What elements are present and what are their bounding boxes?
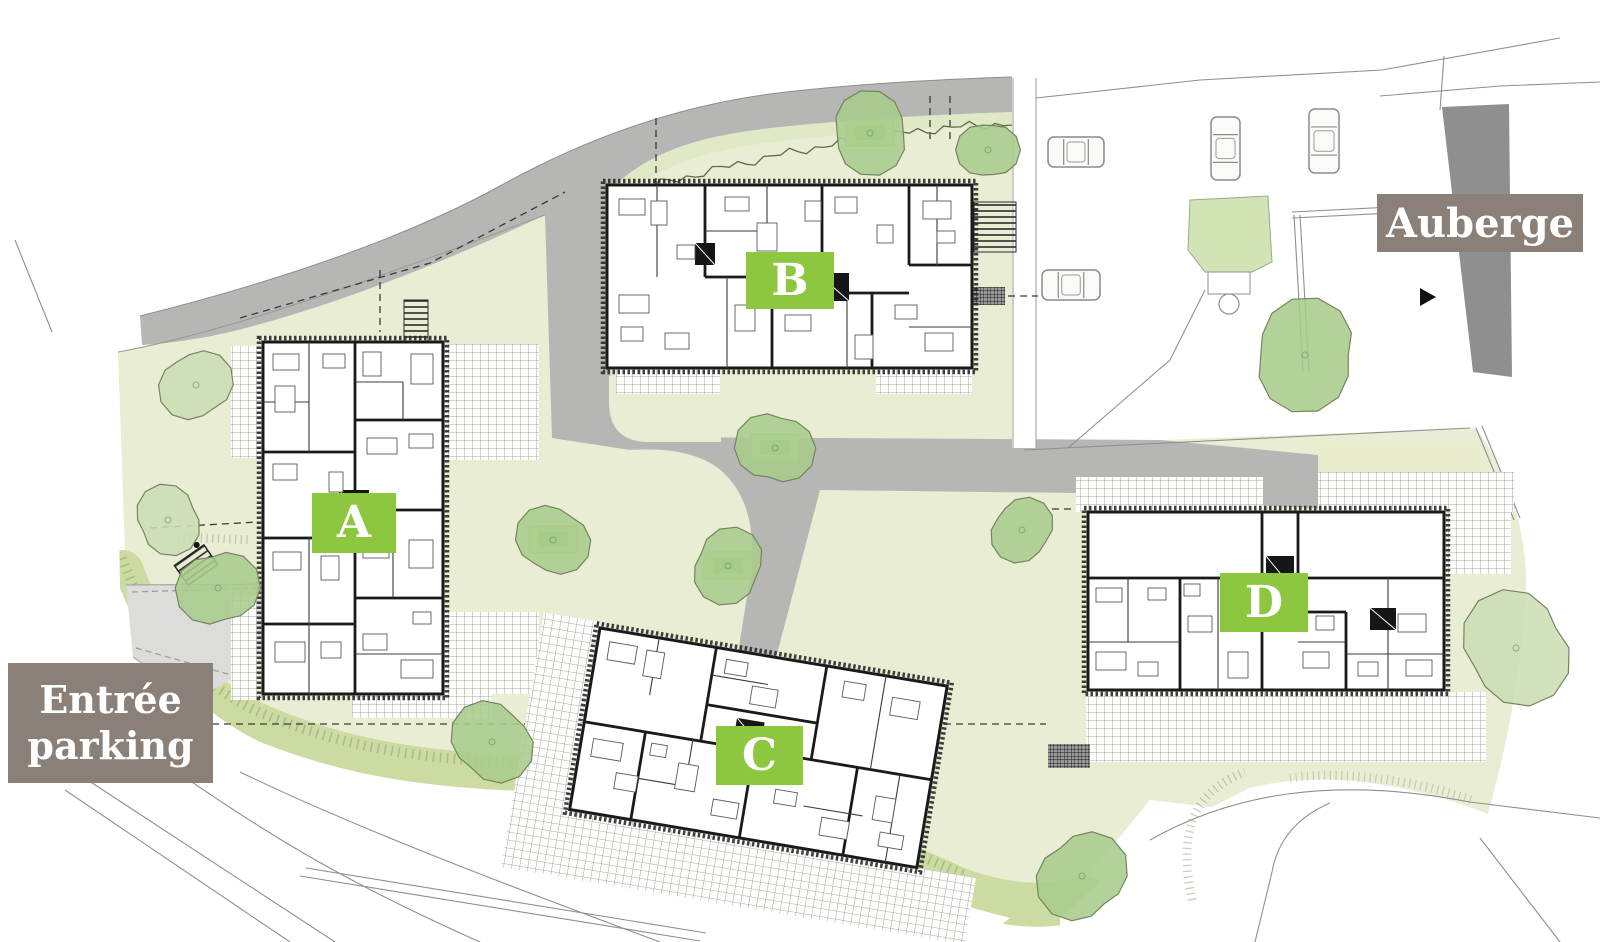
furniture <box>409 540 433 568</box>
entree-label-line1: Entrée <box>39 677 182 723</box>
car <box>1042 270 1100 300</box>
furniture <box>401 660 433 678</box>
tree-canopy <box>836 91 904 175</box>
furniture <box>1358 662 1378 676</box>
furniture <box>842 681 866 700</box>
furniture <box>619 199 645 215</box>
furniture <box>675 763 699 792</box>
furniture <box>363 352 381 376</box>
furniture <box>877 225 893 243</box>
furniture <box>651 201 667 225</box>
building-badge-b[interactable]: B <box>746 252 834 309</box>
site-plan: A B C D Auberge Entrée parking <box>0 0 1600 942</box>
car <box>1048 137 1104 167</box>
furniture <box>273 354 299 370</box>
furniture <box>665 333 689 349</box>
furniture <box>1188 616 1212 632</box>
furniture <box>1096 652 1126 670</box>
car <box>1211 117 1240 180</box>
furniture <box>321 556 339 580</box>
furniture <box>677 245 695 259</box>
tree <box>836 91 904 175</box>
d-garden-strip <box>1318 443 1482 472</box>
tree <box>956 125 1021 175</box>
furniture <box>750 686 779 708</box>
furniture <box>1406 660 1432 676</box>
furniture <box>275 386 295 412</box>
furniture <box>757 223 777 251</box>
furniture <box>895 305 917 319</box>
furniture <box>923 201 951 219</box>
furniture <box>411 354 433 384</box>
furniture <box>724 659 748 676</box>
furniture <box>1316 616 1334 630</box>
furniture <box>329 472 343 492</box>
furniture <box>1148 588 1166 600</box>
tree <box>1259 298 1351 412</box>
auberge-label: Auberge <box>1377 194 1583 252</box>
furniture <box>835 197 857 213</box>
car-body <box>1211 117 1240 180</box>
furniture <box>805 201 821 221</box>
auberge-label-text: Auberge <box>1386 200 1574 247</box>
furniture <box>621 327 643 341</box>
furniture <box>785 315 811 331</box>
furniture <box>413 612 431 624</box>
furniture <box>1398 614 1426 632</box>
furniture <box>1303 652 1329 668</box>
furniture <box>650 743 668 757</box>
furniture <box>273 552 301 570</box>
tree-canopy <box>1259 298 1351 412</box>
furniture <box>367 438 397 454</box>
furniture <box>1184 584 1200 596</box>
furniture <box>1138 662 1158 676</box>
furniture <box>937 231 955 243</box>
building-badge-d[interactable]: D <box>1220 573 1308 632</box>
site-plan-drawing <box>0 0 1600 942</box>
furniture <box>321 642 341 658</box>
furniture <box>725 197 749 211</box>
building-badge-c[interactable]: C <box>716 726 803 785</box>
building-badge-a[interactable]: A <box>312 493 396 553</box>
furniture <box>619 295 649 313</box>
furniture <box>855 335 873 359</box>
entree-label-line2: parking <box>27 723 193 769</box>
furniture <box>275 642 305 662</box>
furniture <box>773 789 797 806</box>
furniture <box>409 434 433 448</box>
furniture <box>1228 652 1248 678</box>
sidewalk-strip <box>1012 76 1036 448</box>
furniture <box>614 773 638 792</box>
furniture <box>363 634 387 650</box>
furniture <box>643 650 665 679</box>
furniture <box>872 796 896 823</box>
furniture <box>323 354 345 368</box>
furniture <box>925 333 953 351</box>
entree-parking-label: Entrée parking <box>8 663 213 783</box>
car <box>1309 109 1339 173</box>
furniture <box>1096 588 1122 602</box>
furniture <box>273 464 297 480</box>
tree-canopy <box>956 125 1021 175</box>
